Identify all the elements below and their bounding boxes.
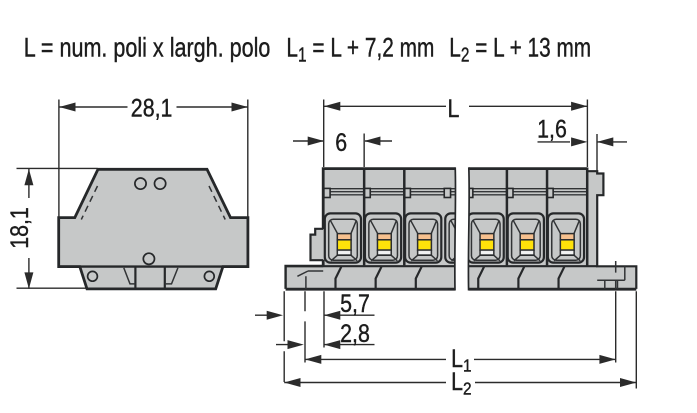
svg-text:L = num. poli x largh. polo: L = num. poli x largh. polo: [24, 33, 271, 63]
svg-text:L1 = L + 7,2 mm: L1 = L + 7,2 mm: [286, 33, 434, 66]
svg-text:5,7: 5,7: [340, 290, 370, 318]
svg-text:6: 6: [335, 128, 347, 156]
svg-text:1,6: 1,6: [537, 115, 567, 143]
svg-text:2,8: 2,8: [340, 319, 370, 347]
svg-text:L: L: [448, 94, 460, 122]
svg-text:L2 = L + 13 mm: L2 = L + 13 mm: [449, 33, 591, 66]
svg-text:18,1: 18,1: [5, 207, 33, 249]
svg-text:28,1: 28,1: [131, 94, 173, 122]
